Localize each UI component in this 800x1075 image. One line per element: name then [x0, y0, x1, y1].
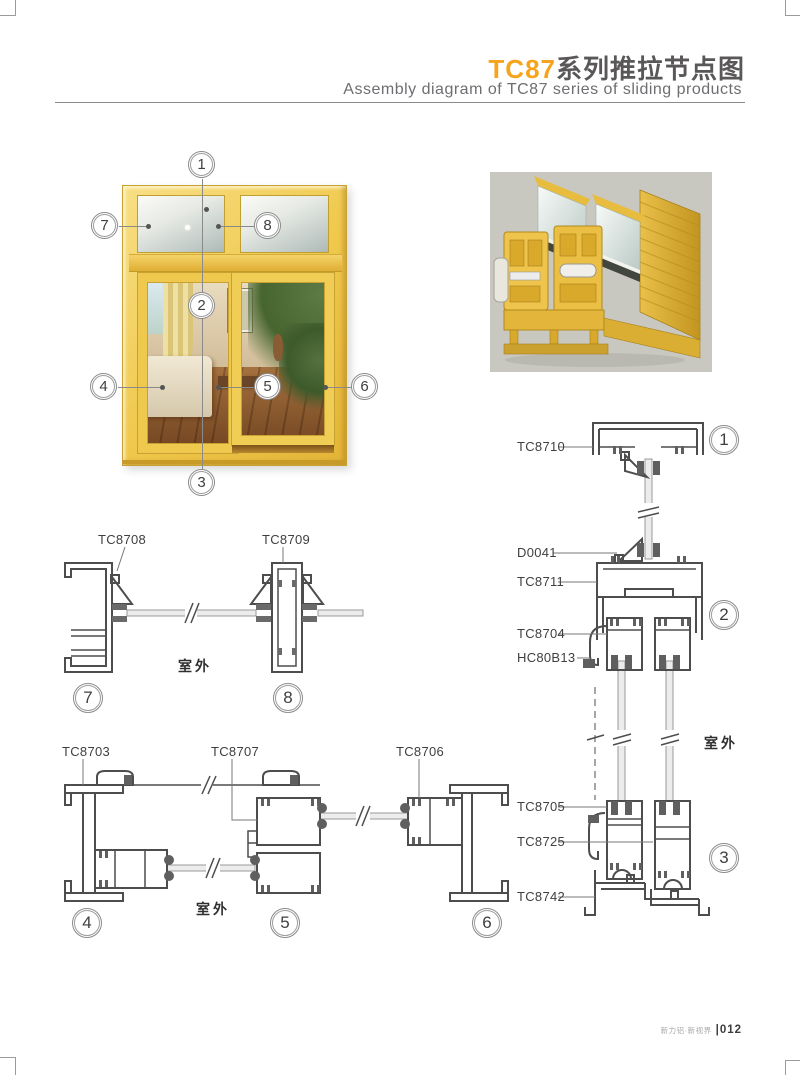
- part-label-tc8703: TC8703: [62, 744, 110, 759]
- part-label-tc8707: TC8707: [211, 744, 259, 759]
- page-subtitle: Assembly diagram of TC87 series of slidi…: [343, 81, 742, 99]
- leader-lines: [117, 547, 283, 571]
- page-title-cn: 系列推拉节点图: [556, 54, 745, 84]
- window-callout-6: 6: [351, 373, 378, 400]
- header-divider: [55, 102, 745, 103]
- outdoor-label: 室外: [704, 733, 738, 753]
- window-callout-5: 5: [254, 373, 281, 400]
- callout-dot: [146, 224, 151, 229]
- section-callout-5: 5: [270, 908, 300, 938]
- render-handle: [494, 258, 508, 302]
- callout-dot: [204, 207, 209, 212]
- gaskets: [112, 580, 317, 655]
- glass: [167, 813, 408, 871]
- sliding-sash-right: [232, 273, 334, 445]
- part-label-tc8704: TC8704: [517, 626, 565, 641]
- window-callout-2: 2: [188, 292, 215, 319]
- section-callout-8: 8: [273, 683, 303, 713]
- leader-lines: [553, 447, 653, 897]
- window-illustration: [122, 185, 347, 466]
- callout-line-8: [218, 226, 254, 227]
- callout-line-vertical: [202, 179, 203, 469]
- callout-dot: [216, 385, 221, 390]
- window-callout-8: 8: [254, 212, 281, 239]
- render-profile-stacks: [494, 226, 602, 318]
- part-label-tc8705: TC8705: [517, 799, 565, 814]
- callout-line-4: [118, 387, 162, 388]
- part-label-tc8711: TC8711: [517, 574, 564, 589]
- render-roller: [560, 264, 596, 277]
- section-callout-7: 7: [73, 683, 103, 713]
- section-4-5-6-drawing: [35, 735, 525, 935]
- part-label-tc8709: TC8709: [262, 532, 310, 547]
- section-callout-2: 2: [709, 600, 739, 630]
- callout-line-5: [218, 387, 254, 388]
- part-label-tc8710: TC8710: [517, 439, 565, 454]
- page-footer: 新力铝·新视界 | 012: [661, 1024, 742, 1036]
- section-callout-4: 4: [72, 908, 102, 938]
- callout-dot: [216, 224, 221, 229]
- sill-shadow: [123, 460, 346, 464]
- crop-mark-top-left: [0, 0, 16, 16]
- section-1-2-3-drawing: [495, 415, 795, 940]
- callout-dot: [160, 385, 165, 390]
- section-callout-1: 1: [709, 425, 739, 455]
- callout-line-7: [119, 226, 148, 227]
- window-callout-1: 1: [188, 151, 215, 178]
- callout-dot: [323, 385, 328, 390]
- part-label-tc8706: TC8706: [396, 744, 444, 759]
- break-symbols: [202, 776, 370, 878]
- catalog-page: TC87系列推拉节点图 Assembly diagram of TC87 ser…: [0, 0, 800, 1075]
- section-callout-6: 6: [472, 908, 502, 938]
- window-callout-7: 7: [91, 212, 118, 239]
- part-label-d0041: D0041: [517, 545, 557, 560]
- outdoor-label: 室外: [178, 656, 212, 676]
- window-callout-3: 3: [188, 469, 215, 496]
- footer-brand: 新力铝·新视界: [661, 1025, 712, 1036]
- callout-line-6: [325, 387, 351, 388]
- crop-mark-top-right: [785, 0, 800, 16]
- outdoor-label: 室外: [196, 899, 230, 919]
- part-label-tc8742: TC8742: [517, 889, 565, 904]
- crop-mark-bottom-left: [0, 1057, 16, 1075]
- part-label-tc8708: TC8708: [98, 532, 146, 547]
- profile-outlines: [65, 771, 508, 901]
- footer-page-number: 012: [720, 1024, 742, 1036]
- part-label-hc80b13: HC80B13: [517, 650, 575, 665]
- bottom-track: [232, 445, 334, 453]
- page-title-series-code: TC87: [488, 54, 556, 84]
- part-label-tc8725: TC8725: [517, 834, 565, 849]
- window-callout-4: 4: [90, 373, 117, 400]
- crop-mark-bottom-right: [785, 1060, 800, 1075]
- ceiling-light-dot: [185, 225, 190, 230]
- footer-separator: |: [716, 1024, 719, 1036]
- transom-rail: [129, 254, 342, 272]
- gaskets-and-piles: [99, 775, 455, 892]
- profile-3d-render: [490, 172, 712, 372]
- section-callout-3: 3: [709, 843, 739, 873]
- glass: [127, 610, 363, 616]
